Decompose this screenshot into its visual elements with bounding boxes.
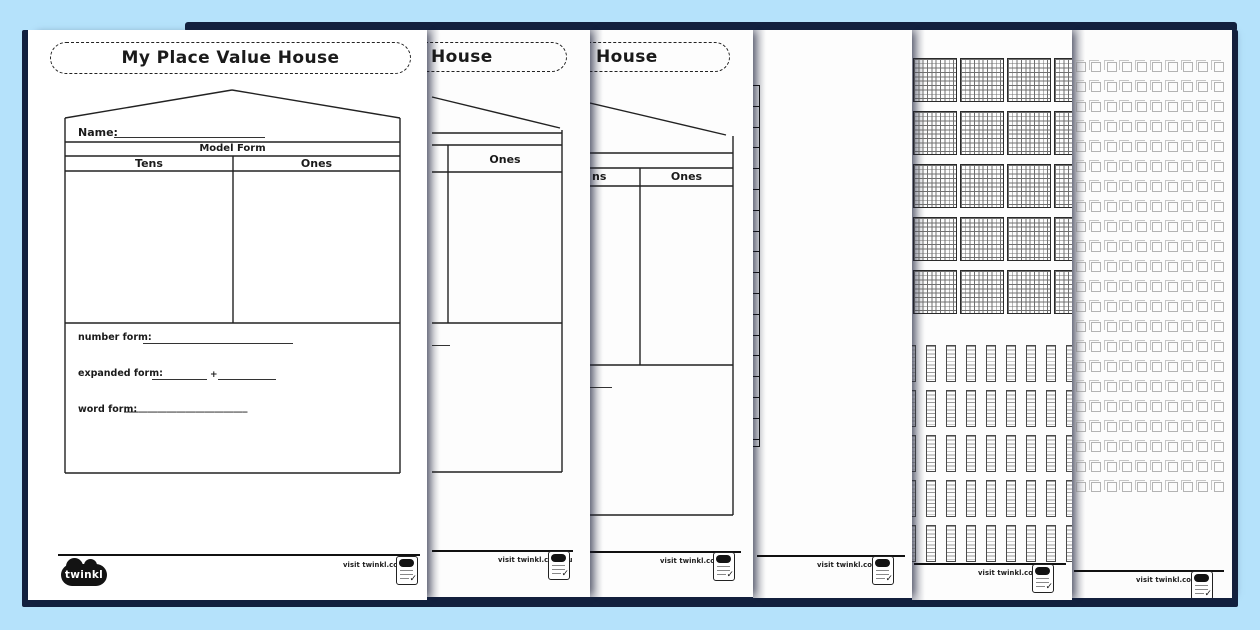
ones-cube xyxy=(1214,402,1224,412)
ones-cube xyxy=(1122,402,1132,412)
worksheet-page-3-place-value-house[interactable]: House ns Ones visit twinkl.com.au ✓ xyxy=(590,30,753,597)
house-outline xyxy=(28,30,427,600)
ones-cube xyxy=(1091,122,1101,132)
ones-cube xyxy=(1214,142,1224,152)
ones-cube xyxy=(1214,62,1224,72)
ones-cube xyxy=(1107,402,1117,412)
strip-cell xyxy=(753,294,759,315)
badge-check-icon: ✓ xyxy=(409,574,417,584)
hundreds-block xyxy=(960,217,1004,261)
ones-cube xyxy=(1198,422,1208,432)
ones-cube xyxy=(1122,62,1132,72)
ones-cube xyxy=(1076,222,1086,232)
badge-line xyxy=(717,566,730,567)
ones-cube xyxy=(1183,222,1193,232)
tens-rod xyxy=(946,390,956,427)
ones-cube xyxy=(1107,242,1117,252)
tens-rod xyxy=(1026,390,1036,427)
ones-cube xyxy=(1198,282,1208,292)
ones-cube xyxy=(1152,82,1162,92)
ones-cube xyxy=(1168,382,1178,392)
ones-cube xyxy=(1168,302,1178,312)
ones-cube xyxy=(1183,422,1193,432)
ones-cube xyxy=(1168,422,1178,432)
ones-cube xyxy=(1076,202,1086,212)
ones-cube xyxy=(1152,222,1162,232)
tens-rod xyxy=(1066,345,1072,382)
model-form-header: Model Form xyxy=(65,143,400,154)
badge-check-icon: ✓ xyxy=(561,569,569,579)
tens-rod xyxy=(1006,480,1016,517)
ones-cube xyxy=(1214,202,1224,212)
ones-cube xyxy=(1091,182,1101,192)
hundreds-block xyxy=(960,270,1004,314)
worksheet-page-6-ones-cubes[interactable]: visit twinkl.com.au ✓ xyxy=(1072,30,1232,598)
ones-cube xyxy=(1122,162,1132,172)
ones-cube xyxy=(1183,442,1193,452)
expanded-form-line-1 xyxy=(152,379,207,380)
ones-cube xyxy=(1214,442,1224,452)
ones-cube xyxy=(1076,182,1086,192)
ones-cube xyxy=(1183,242,1193,252)
ones-cube xyxy=(1091,442,1101,452)
ones-cube xyxy=(1168,402,1178,412)
strip-cell xyxy=(753,128,759,149)
tens-rod xyxy=(1046,390,1056,427)
twinkl-cloud-icon xyxy=(1035,567,1050,575)
tens-rod xyxy=(986,345,996,382)
twinkl-logo: twinkl xyxy=(61,564,107,586)
tens-rod xyxy=(1066,390,1072,427)
ones-cube xyxy=(1152,202,1162,212)
ones-column-header: Ones xyxy=(448,153,562,166)
tens-rod xyxy=(1046,435,1056,472)
strip-cell xyxy=(753,419,759,440)
ones-cube xyxy=(1152,262,1162,272)
tens-rod xyxy=(966,480,976,517)
ones-cube xyxy=(1091,242,1101,252)
tens-rod xyxy=(1006,390,1016,427)
ones-cube xyxy=(1091,82,1101,92)
ones-cube xyxy=(1214,82,1224,92)
ones-cube xyxy=(1122,222,1132,232)
twinkl-cloud-icon xyxy=(551,554,566,562)
ones-cube xyxy=(1183,122,1193,132)
ones-cube xyxy=(1198,102,1208,112)
tens-rod xyxy=(986,435,996,472)
strip-cell xyxy=(753,211,759,232)
ones-cube xyxy=(1107,62,1117,72)
hundreds-block xyxy=(1007,270,1051,314)
tens-rod xyxy=(946,480,956,517)
ones-cube xyxy=(1168,142,1178,152)
ones-cube xyxy=(1183,302,1193,312)
tens-rod xyxy=(912,525,916,562)
hundreds-block xyxy=(913,58,957,102)
badge-check-icon: ✓ xyxy=(1045,582,1053,592)
ones-cube xyxy=(1168,282,1178,292)
tens-rod xyxy=(926,480,936,517)
hundreds-block xyxy=(1054,111,1072,155)
strip-cell xyxy=(753,252,759,273)
ones-cube xyxy=(1091,202,1101,212)
ones-cube xyxy=(1168,362,1178,372)
hundreds-block xyxy=(1054,58,1072,102)
ones-cube xyxy=(1214,322,1224,332)
ones-cube xyxy=(1122,342,1132,352)
strip-cell xyxy=(753,190,759,211)
ones-cube xyxy=(1168,342,1178,352)
ones-cube xyxy=(1107,222,1117,232)
ones-cube xyxy=(1183,262,1193,272)
ones-cube xyxy=(1107,82,1117,92)
ones-cube xyxy=(1168,322,1178,332)
ones-cube xyxy=(1107,202,1117,212)
ones-cube xyxy=(1076,442,1086,452)
ones-cube xyxy=(1122,282,1132,292)
tens-rod xyxy=(926,345,936,382)
twinkl-badge-icon: ✓ xyxy=(872,556,894,585)
tens-rod xyxy=(946,345,956,382)
twinkl-logo-text: twinkl xyxy=(65,569,103,581)
ones-cube xyxy=(1076,62,1086,72)
ones-cube xyxy=(1183,322,1193,332)
ones-cube xyxy=(1091,302,1101,312)
ones-cube xyxy=(1183,142,1193,152)
tens-rod xyxy=(912,480,916,517)
ones-cube xyxy=(1091,162,1101,172)
ones-cube xyxy=(1137,142,1147,152)
ones-cube xyxy=(1183,162,1193,172)
ones-cube xyxy=(1122,102,1132,112)
badge-check-icon: ✓ xyxy=(726,570,734,580)
twinkl-cloud-icon xyxy=(1194,574,1209,582)
ones-cube xyxy=(1198,62,1208,72)
worksheet-preview: visit twinkl.com.au ✓ visit twinkl.com.a… xyxy=(0,0,1260,630)
strip-cell xyxy=(753,169,759,190)
ones-cube xyxy=(1091,62,1101,72)
hundreds-block xyxy=(1054,270,1072,314)
worksheet-page-4[interactable]: visit twinkl.com.au ✓ xyxy=(753,30,912,598)
ones-cube xyxy=(1137,342,1147,352)
strip-cell xyxy=(753,315,759,336)
ones-cube xyxy=(1183,202,1193,212)
ones-cube xyxy=(1076,162,1086,172)
ones-cube xyxy=(1137,382,1147,392)
ones-cube xyxy=(1183,62,1193,72)
tens-rod xyxy=(966,435,976,472)
ones-cube xyxy=(1076,282,1086,292)
twinkl-cloud-icon xyxy=(875,559,890,567)
ones-cube xyxy=(1122,322,1132,332)
twinkl-cloud-icon xyxy=(716,555,731,563)
ones-cube xyxy=(1122,142,1132,152)
ones-cube xyxy=(1091,462,1101,472)
ones-cube xyxy=(1198,262,1208,272)
ones-cube xyxy=(1091,362,1101,372)
ones-cube xyxy=(1198,382,1208,392)
ones-cube xyxy=(1214,362,1224,372)
ones-cube xyxy=(1183,282,1193,292)
tens-rod xyxy=(1066,435,1072,472)
expanded-form-label: expanded form: xyxy=(78,368,163,379)
ones-cube xyxy=(1183,482,1193,492)
ones-cube xyxy=(1198,82,1208,92)
ones-cube xyxy=(1091,102,1101,112)
ones-cube xyxy=(1107,162,1117,172)
badge-line xyxy=(1195,585,1208,586)
ones-cube xyxy=(1122,262,1132,272)
hundreds-block xyxy=(913,164,957,208)
badge-line xyxy=(717,574,726,575)
ones-cube xyxy=(1091,382,1101,392)
ones-cube xyxy=(1214,462,1224,472)
hundreds-block xyxy=(960,58,1004,102)
tens-rod xyxy=(986,525,996,562)
ones-cube xyxy=(1137,62,1147,72)
tens-rod xyxy=(1066,480,1072,517)
tens-rod xyxy=(946,525,956,562)
ones-cube xyxy=(1107,482,1117,492)
worksheet-page-5-base-ten-blocks[interactable]: visit twinkl.com.au ✓ xyxy=(912,30,1072,600)
ones-cube xyxy=(1107,302,1117,312)
ones-cube xyxy=(1168,102,1178,112)
ones-cube xyxy=(1168,462,1178,472)
ones-cube xyxy=(1107,442,1117,452)
ones-cube xyxy=(1137,202,1147,212)
ones-cube xyxy=(1168,442,1178,452)
twinkl-badge-icon: ✓ xyxy=(548,551,570,580)
ones-cube xyxy=(1137,442,1147,452)
ones-cube xyxy=(1198,222,1208,232)
ones-cube xyxy=(1168,162,1178,172)
ones-cube xyxy=(1076,122,1086,132)
ones-cube xyxy=(1152,162,1162,172)
ones-cube xyxy=(1198,122,1208,132)
tens-rod xyxy=(1046,345,1056,382)
ones-cube xyxy=(1152,382,1162,392)
ones-column-header: Ones xyxy=(233,157,400,170)
ones-cube xyxy=(1183,362,1193,372)
tens-rod xyxy=(946,435,956,472)
ones-cube xyxy=(1198,142,1208,152)
ones-cube xyxy=(1076,402,1086,412)
hundreds-blocks-grid xyxy=(913,58,1072,314)
tens-rod xyxy=(1026,435,1036,472)
tens-rod xyxy=(986,390,996,427)
ones-cube xyxy=(1076,342,1086,352)
hundreds-block xyxy=(913,111,957,155)
ones-cube xyxy=(1183,462,1193,472)
ones-cube xyxy=(1076,322,1086,332)
tens-rod xyxy=(1066,525,1072,562)
ones-cube xyxy=(1137,322,1147,332)
number-form-label: number form: xyxy=(78,332,152,343)
ones-cube xyxy=(1214,242,1224,252)
ones-cube xyxy=(1198,342,1208,352)
ones-cube xyxy=(1107,462,1117,472)
tens-rod xyxy=(1026,345,1036,382)
ones-cube xyxy=(1091,262,1101,272)
place-value-column-strip xyxy=(753,85,760,447)
strip-cell xyxy=(753,398,759,419)
ones-cube xyxy=(1198,242,1208,252)
ones-cube xyxy=(1122,82,1132,92)
ones-cube xyxy=(1091,222,1101,232)
ones-cube xyxy=(1137,302,1147,312)
twinkl-cloud-icon xyxy=(399,559,414,567)
ones-cube xyxy=(1214,222,1224,232)
worksheet-page-1-place-value-house[interactable]: My Place Value House Name: Model Form Te… xyxy=(28,30,427,600)
ones-cube xyxy=(1198,322,1208,332)
word-form-line: __________________________ xyxy=(124,402,260,413)
badge-line xyxy=(876,578,885,579)
ones-cube xyxy=(1183,402,1193,412)
ones-cube xyxy=(1107,422,1117,432)
ones-cube xyxy=(1137,242,1147,252)
badge-line xyxy=(552,565,565,566)
ones-cube xyxy=(1137,262,1147,272)
ones-cube xyxy=(1122,462,1132,472)
worksheet-page-2-place-value-house[interactable]: House Ones visit twinkl.com.au ✓ xyxy=(427,30,590,597)
hundreds-block xyxy=(913,217,957,261)
ones-cube xyxy=(1107,122,1117,132)
badge-line xyxy=(400,578,409,579)
ones-cube xyxy=(1183,342,1193,352)
tens-rod xyxy=(1046,480,1056,517)
strip-cell xyxy=(753,148,759,169)
tens-rod xyxy=(1026,480,1036,517)
ones-cube xyxy=(1198,202,1208,212)
ones-cube xyxy=(1198,402,1208,412)
tens-rod xyxy=(926,525,936,562)
ones-cube xyxy=(1183,182,1193,192)
ones-cube xyxy=(1107,382,1117,392)
ones-cube xyxy=(1137,422,1147,432)
tens-rod xyxy=(1006,525,1016,562)
ones-cube xyxy=(1076,242,1086,252)
ones-cube xyxy=(1137,102,1147,112)
ones-cube xyxy=(1107,262,1117,272)
ones-cube xyxy=(1137,182,1147,192)
ones-cube xyxy=(1168,82,1178,92)
ones-cube xyxy=(1152,422,1162,432)
ones-cube xyxy=(1198,442,1208,452)
ones-cubes-grid xyxy=(1076,62,1225,493)
hundreds-block xyxy=(960,111,1004,155)
twinkl-badge-icon: ✓ xyxy=(1191,571,1213,598)
tens-rod xyxy=(926,435,936,472)
plus-sign: + xyxy=(210,370,218,380)
ones-cube xyxy=(1168,242,1178,252)
house-outline xyxy=(427,30,590,597)
hundreds-block xyxy=(1007,164,1051,208)
ones-cube xyxy=(1214,382,1224,392)
ones-cube xyxy=(1091,402,1101,412)
ones-cube xyxy=(1214,102,1224,112)
tens-rod xyxy=(912,390,916,427)
form-answer-line xyxy=(432,345,450,346)
twinkl-badge-icon: ✓ xyxy=(1032,564,1054,593)
footer-divider xyxy=(58,554,420,556)
ones-cube xyxy=(1152,182,1162,192)
ones-column-header: Ones xyxy=(640,170,733,183)
tens-rod xyxy=(966,525,976,562)
ones-cube xyxy=(1107,182,1117,192)
ones-cube xyxy=(1214,422,1224,432)
tens-column-header: ns xyxy=(592,170,606,183)
ones-cube xyxy=(1137,362,1147,372)
ones-cube xyxy=(1107,142,1117,152)
badge-line xyxy=(1195,593,1204,594)
ones-cube xyxy=(1091,342,1101,352)
ones-cube xyxy=(1076,382,1086,392)
form-answer-line xyxy=(590,387,612,388)
ones-cube xyxy=(1198,482,1208,492)
tens-rod xyxy=(1006,345,1016,382)
ones-cube xyxy=(1214,342,1224,352)
ones-cube xyxy=(1107,342,1117,352)
strip-cell xyxy=(753,336,759,357)
ones-cube xyxy=(1183,102,1193,112)
ones-cube xyxy=(1152,302,1162,312)
ones-cube xyxy=(1137,222,1147,232)
ones-cube xyxy=(1137,482,1147,492)
tens-rod xyxy=(966,345,976,382)
ones-cube xyxy=(1076,82,1086,92)
ones-cube xyxy=(1076,262,1086,272)
ones-cube xyxy=(1122,362,1132,372)
ones-cube xyxy=(1137,122,1147,132)
ones-cube xyxy=(1107,362,1117,372)
strip-cell xyxy=(753,273,759,294)
badge-line xyxy=(876,570,889,571)
ones-cube xyxy=(1152,482,1162,492)
strip-cell xyxy=(753,107,759,128)
ones-cube xyxy=(1122,202,1132,212)
hundreds-block xyxy=(960,164,1004,208)
ones-cube xyxy=(1137,82,1147,92)
tens-rod xyxy=(1046,525,1056,562)
badge-check-icon: ✓ xyxy=(885,574,893,584)
ones-cube xyxy=(1137,162,1147,172)
hundreds-block xyxy=(913,270,957,314)
ones-cube xyxy=(1198,362,1208,372)
ones-cube xyxy=(1122,442,1132,452)
twinkl-badge-icon: ✓ xyxy=(396,556,418,585)
badge-line xyxy=(400,570,413,571)
ones-cube xyxy=(1122,122,1132,132)
ones-cube xyxy=(1152,322,1162,332)
ones-cube xyxy=(1091,282,1101,292)
ones-cube xyxy=(1152,342,1162,352)
tens-rod xyxy=(912,345,916,382)
tens-column-header: Tens xyxy=(65,157,233,170)
ones-cube xyxy=(1214,182,1224,192)
tens-rod xyxy=(912,435,916,472)
tens-rods-grid xyxy=(912,345,1072,562)
badge-line xyxy=(1036,578,1049,579)
tens-rod xyxy=(966,390,976,427)
ones-cube xyxy=(1152,122,1162,132)
twinkl-badge-icon: ✓ xyxy=(713,552,735,581)
ones-cube xyxy=(1198,162,1208,172)
ones-cube xyxy=(1122,242,1132,252)
expanded-form-line-2 xyxy=(218,379,276,380)
ones-cube xyxy=(1168,182,1178,192)
strip-cell xyxy=(753,232,759,253)
strip-cell xyxy=(753,356,759,377)
